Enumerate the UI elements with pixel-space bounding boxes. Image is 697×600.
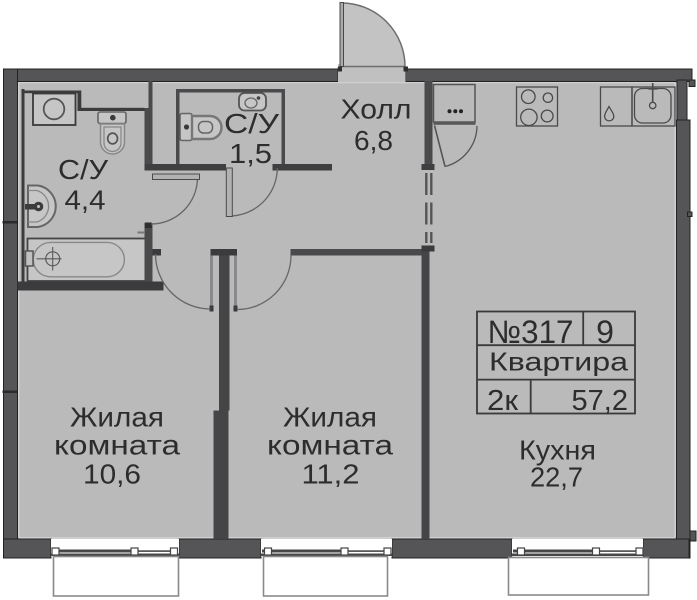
svg-text:6,8: 6,8: [354, 125, 393, 156]
svg-text:№317: №317: [488, 314, 574, 350]
svg-text:10,6: 10,6: [83, 459, 141, 490]
svg-text:Жилая: Жилая: [283, 402, 377, 433]
svg-text:4,4: 4,4: [65, 185, 106, 216]
svg-text:57,2: 57,2: [572, 385, 628, 417]
svg-text:22,7: 22,7: [530, 462, 583, 493]
svg-text:1,5: 1,5: [229, 138, 272, 169]
svg-text:Жилая: Жилая: [70, 402, 164, 433]
svg-text:11,2: 11,2: [302, 459, 360, 490]
svg-text:С/У: С/У: [224, 108, 280, 139]
svg-text:2к: 2к: [487, 385, 518, 417]
svg-text:Квартира: Квартира: [489, 347, 629, 377]
svg-text:комната: комната: [267, 429, 394, 460]
svg-text:комната: комната: [54, 429, 181, 460]
svg-text:Холл: Холл: [341, 93, 412, 124]
svg-text:9: 9: [596, 314, 614, 350]
svg-text:С/У: С/У: [58, 154, 109, 185]
